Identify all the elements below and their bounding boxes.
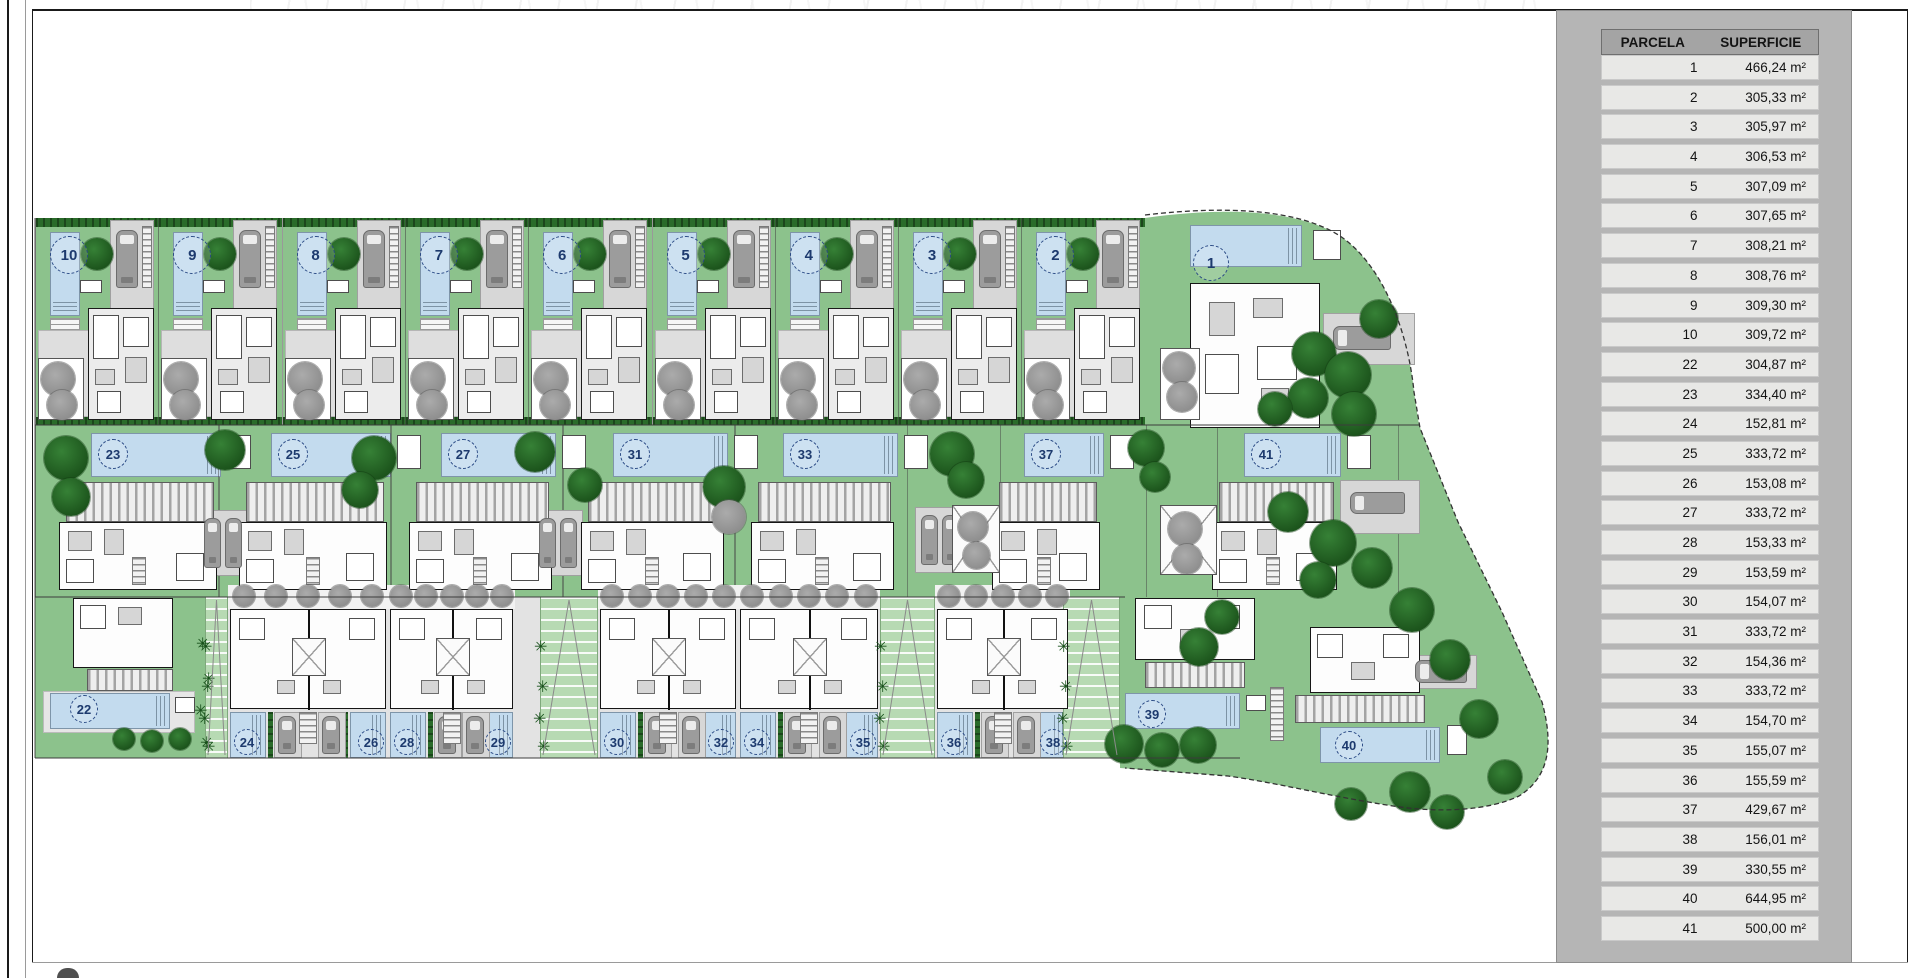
car-icon — [225, 518, 242, 568]
parcel-row: 33333,72 m² — [1601, 678, 1819, 703]
furniture — [1018, 680, 1036, 694]
gray-tree-icon — [265, 585, 287, 607]
parcel-number: 28 — [1602, 535, 1704, 550]
parcel-number: 8 — [1602, 268, 1704, 283]
room — [216, 315, 242, 359]
plot-villa-mid — [1000, 425, 1147, 597]
furniture — [590, 531, 614, 551]
parcel-row: 25333,72 m² — [1601, 441, 1819, 466]
pool-steps — [546, 302, 570, 313]
plot-label: 38 — [1040, 729, 1066, 755]
parcel-area: 334,40 m² — [1704, 387, 1818, 402]
furniture — [865, 357, 887, 383]
tree-icon — [1180, 727, 1216, 763]
parcel-number: 36 — [1602, 773, 1704, 788]
furniture — [372, 357, 394, 383]
plot-label: 4 — [790, 236, 828, 274]
pergola — [416, 482, 549, 522]
room — [349, 618, 375, 640]
tree-icon — [1430, 795, 1464, 829]
parcel-row: 10309,72 m² — [1601, 322, 1819, 347]
gray-tree-icon — [963, 542, 990, 569]
tree-icon — [1310, 520, 1356, 566]
plot-label: 23 — [98, 439, 128, 469]
parcel-table: PARCELA SUPERFICIE 1466,24 m²2305,33 m²3… — [1601, 29, 1819, 946]
room — [176, 553, 204, 581]
room — [1383, 634, 1409, 658]
tree-icon — [1268, 492, 1308, 532]
parcel-row: 31333,72 m² — [1601, 619, 1819, 644]
tree-icon — [113, 728, 135, 750]
plot-label: 28 — [394, 729, 420, 755]
palm-icon: ✳ — [874, 640, 887, 656]
house — [335, 308, 401, 420]
furniture — [778, 680, 796, 694]
plot-label: 22 — [70, 695, 98, 723]
furniture — [218, 369, 238, 385]
room — [1144, 605, 1172, 629]
room — [841, 618, 867, 640]
parcel-number: 22 — [1602, 357, 1704, 372]
car-icon — [322, 716, 340, 754]
pool-steps — [1039, 302, 1063, 313]
furniture — [988, 357, 1010, 383]
furniture — [323, 680, 341, 694]
parcel-table-header-superficie: SUPERFICIE — [1704, 35, 1818, 50]
parcel-area: 308,21 m² — [1704, 238, 1818, 253]
parcel-row: 9309,30 m² — [1601, 293, 1819, 318]
room — [463, 315, 489, 359]
stairs — [645, 557, 659, 585]
parcel-row: 1466,24 m² — [1601, 55, 1819, 80]
table-icon — [573, 280, 595, 293]
plot-label: 35 — [850, 729, 876, 755]
stairs — [1266, 557, 1280, 585]
gray-tree-icon — [629, 585, 651, 607]
stairs — [1128, 226, 1138, 288]
furniture — [1081, 369, 1101, 385]
furniture — [284, 529, 304, 555]
gray-tree-icon — [1019, 585, 1041, 607]
plot-label: 36 — [941, 729, 967, 755]
pool-steps — [423, 302, 447, 313]
room — [340, 315, 366, 359]
tree-icon — [1335, 788, 1367, 820]
tree-icon — [1105, 725, 1143, 763]
room — [837, 391, 861, 413]
parcel-area: 304,87 m² — [1704, 357, 1818, 372]
parcel-row: 5307,09 m² — [1601, 174, 1819, 199]
gray-tree-icon — [713, 585, 735, 607]
house — [73, 598, 173, 668]
gray-tree-icon — [297, 585, 319, 607]
pool-steps — [884, 436, 895, 474]
parcel-table-panel: PARCELA SUPERFICIE 1466,24 m²2305,33 m²3… — [1556, 10, 1852, 963]
tree-icon — [1352, 548, 1392, 588]
furniture — [824, 680, 842, 694]
room — [246, 559, 274, 583]
sunbeds-icon — [1347, 435, 1371, 469]
parcel-number: 4 — [1602, 149, 1704, 164]
room — [956, 315, 982, 359]
pergola — [1295, 695, 1425, 723]
furniture — [588, 369, 608, 385]
house — [581, 522, 724, 590]
pool — [50, 693, 170, 729]
car-icon — [682, 716, 700, 754]
gray-tree-icon — [910, 390, 940, 420]
gray-tree-icon — [540, 390, 570, 420]
car-icon — [239, 230, 261, 288]
gray-tree-icon — [417, 390, 447, 420]
gray-tree-icon — [798, 585, 820, 607]
furniture — [972, 680, 990, 694]
furniture — [1209, 302, 1235, 336]
furniture — [1111, 357, 1133, 383]
gray-tree-icon — [329, 585, 351, 607]
furniture — [712, 369, 732, 385]
furniture — [454, 529, 474, 555]
room — [946, 618, 972, 640]
stairs-court — [436, 638, 470, 676]
gray-tree-icon — [294, 390, 324, 420]
stairs — [473, 557, 487, 585]
room — [999, 559, 1027, 583]
parcel-number: 3 — [1602, 119, 1704, 134]
car-icon — [609, 230, 631, 288]
parcel-number: 23 — [1602, 387, 1704, 402]
tree-icon — [1430, 640, 1470, 680]
furniture — [958, 369, 978, 385]
pool-steps — [1288, 228, 1299, 264]
tree-icon — [1205, 600, 1239, 634]
parcel-number: 31 — [1602, 624, 1704, 639]
tree-icon — [1145, 733, 1179, 767]
furniture — [465, 369, 485, 385]
parcel-row: 36155,59 m² — [1601, 768, 1819, 793]
pergola — [1145, 662, 1245, 688]
house — [937, 609, 1068, 709]
house — [239, 522, 387, 590]
utility-icon — [1246, 695, 1266, 711]
car-icon — [116, 230, 138, 288]
tree-icon — [1460, 700, 1498, 738]
car-icon — [560, 518, 577, 568]
room — [1257, 346, 1297, 380]
car-icon — [204, 518, 221, 568]
plot-label: 41 — [1251, 439, 1281, 469]
parcel-area: 154,07 m² — [1704, 594, 1818, 609]
sunbeds-icon — [904, 435, 928, 469]
palm-icon: ✳ — [537, 740, 550, 756]
stairs — [265, 226, 275, 288]
tree-icon — [1488, 760, 1522, 794]
pool-steps — [176, 302, 200, 313]
plot-label: 3 — [913, 236, 951, 274]
tree-icon — [1180, 628, 1218, 666]
parcel-area: 152,81 m² — [1704, 416, 1818, 431]
parcel-number: 1 — [1602, 60, 1704, 75]
parcel-area: 307,65 m² — [1704, 208, 1818, 223]
parcel-table-header: PARCELA SUPERFICIE — [1601, 29, 1819, 55]
parcel-number: 9 — [1602, 298, 1704, 313]
parcel-number: 7 — [1602, 238, 1704, 253]
parcel-area: 153,33 m² — [1704, 535, 1818, 550]
stairs — [1005, 226, 1015, 288]
pergola — [588, 482, 721, 522]
room — [740, 317, 766, 347]
furniture — [104, 529, 124, 555]
hedge-strip — [268, 712, 273, 758]
stairs — [635, 226, 645, 288]
parcel-area: 155,07 m² — [1704, 743, 1818, 758]
pergola — [758, 482, 891, 522]
house — [230, 609, 386, 709]
pool-steps — [793, 302, 817, 313]
parcel-number: 27 — [1602, 505, 1704, 520]
hedge-strip — [778, 712, 783, 758]
room — [511, 553, 539, 581]
parcel-row: 4306,53 m² — [1601, 144, 1819, 169]
plot-label: 34 — [744, 729, 770, 755]
room — [476, 618, 502, 640]
house — [458, 308, 524, 420]
plot-label: 39 — [1138, 700, 1166, 728]
parcel-number: 30 — [1602, 594, 1704, 609]
hedge-strip — [638, 712, 643, 758]
pool-steps — [53, 302, 77, 313]
gray-tree-icon — [1168, 512, 1202, 546]
furniture — [1257, 529, 1277, 555]
stairs — [800, 712, 818, 744]
plot-label: 26 — [358, 729, 384, 755]
furniture — [467, 680, 485, 694]
parcel-table-rows: 1466,24 m²2305,33 m²3305,97 m²4306,53 m²… — [1601, 55, 1819, 941]
gray-tree-icon — [685, 585, 707, 607]
stairs — [142, 226, 152, 288]
tree-icon — [1390, 588, 1434, 632]
room — [749, 618, 775, 640]
room — [246, 317, 272, 347]
parcel-number: 41 — [1602, 921, 1704, 936]
room — [699, 618, 725, 640]
parcel-area: 466,24 m² — [1704, 60, 1818, 75]
palm-icon: ✳ — [202, 740, 215, 756]
room — [399, 618, 425, 640]
table-icon — [943, 280, 965, 293]
stairs — [994, 712, 1012, 744]
parcel-area: 154,70 m² — [1704, 713, 1818, 728]
parcel-row: 28153,33 m² — [1601, 530, 1819, 555]
parcel-row: 2305,33 m² — [1601, 85, 1819, 110]
table-icon — [203, 280, 225, 293]
stairs — [1037, 557, 1051, 585]
gray-tree-icon — [390, 585, 412, 607]
parcel-area: 307,09 m² — [1704, 179, 1818, 194]
room — [1219, 559, 1247, 583]
house — [1074, 308, 1140, 420]
plot-label: 40 — [1335, 731, 1363, 759]
plot-label: 37 — [1031, 439, 1061, 469]
furniture — [342, 369, 362, 385]
parcel-area: 429,67 m² — [1704, 802, 1818, 817]
stairs — [299, 712, 317, 744]
room — [1031, 618, 1057, 640]
gray-tree-icon — [938, 585, 960, 607]
furniture — [248, 531, 272, 551]
parcel-number: 32 — [1602, 654, 1704, 669]
plot-label: 27 — [448, 439, 478, 469]
car-icon — [856, 230, 878, 288]
pool-steps — [1226, 696, 1237, 726]
gray-tree-icon — [361, 585, 383, 607]
parcel-area: 155,59 m² — [1704, 773, 1818, 788]
car-icon — [823, 716, 841, 754]
pool-steps — [670, 302, 694, 313]
parcel-area: 306,53 m² — [1704, 149, 1818, 164]
furniture — [277, 680, 295, 694]
parcel-area: 500,00 m² — [1704, 921, 1818, 936]
room — [609, 618, 635, 640]
parcel-area: 333,72 m² — [1704, 624, 1818, 639]
parcel-row: 40644,95 m² — [1601, 886, 1819, 911]
parcel-row: 6307,65 m² — [1601, 203, 1819, 228]
gray-tree-icon — [787, 390, 817, 420]
room — [1083, 391, 1107, 413]
pool-steps — [156, 696, 167, 726]
parcel-number: 10 — [1602, 327, 1704, 342]
utility-icon — [175, 697, 195, 713]
tree-icon — [1300, 562, 1336, 598]
parcel-area: 305,97 m² — [1704, 119, 1818, 134]
car-icon — [1102, 230, 1124, 288]
parcel-area: 309,30 m² — [1704, 298, 1818, 313]
stairs — [882, 226, 892, 288]
parcel-number: 25 — [1602, 446, 1704, 461]
room — [493, 317, 519, 347]
gray-tree-icon — [441, 585, 463, 607]
plot-label: 1 — [1193, 245, 1229, 281]
stairs-court — [292, 638, 326, 676]
room — [93, 315, 119, 359]
furniture — [1253, 298, 1283, 318]
parcel-row: 23334,40 m² — [1601, 382, 1819, 407]
car-icon — [486, 230, 508, 288]
room — [758, 559, 786, 583]
house — [992, 522, 1100, 590]
parcel-row: 24152,81 m² — [1601, 411, 1819, 436]
room — [1317, 634, 1343, 658]
room — [66, 559, 94, 583]
stairs-court — [652, 638, 686, 676]
furniture — [1001, 531, 1025, 551]
parcel-area: 308,76 m² — [1704, 268, 1818, 283]
house — [828, 308, 894, 420]
furniture — [495, 357, 517, 383]
palm-icon: ✳ — [198, 712, 211, 728]
stairs-court — [793, 638, 827, 676]
gray-tree-icon — [1046, 585, 1068, 607]
house — [751, 522, 894, 590]
tree-icon — [1390, 772, 1430, 812]
stairs-court — [987, 638, 1021, 676]
house — [740, 609, 878, 709]
pool-steps — [1327, 436, 1338, 474]
table-icon — [450, 280, 472, 293]
furniture — [637, 680, 655, 694]
palm-icon: ✳ — [536, 680, 549, 696]
palm-icon: ✳ — [1059, 680, 1072, 696]
tree-icon — [44, 436, 88, 480]
room — [863, 317, 889, 347]
parcel-row: 34154,70 m² — [1601, 708, 1819, 733]
house — [59, 522, 217, 590]
tree-icon — [1140, 462, 1170, 492]
stairs — [1270, 687, 1284, 741]
parcel-number: 5 — [1602, 179, 1704, 194]
room — [853, 553, 881, 581]
furniture — [418, 531, 442, 551]
plot-label: 30 — [604, 729, 630, 755]
parcel-number: 26 — [1602, 476, 1704, 491]
car-icon — [733, 230, 755, 288]
house — [600, 609, 736, 709]
furniture — [835, 369, 855, 385]
pool-steps — [916, 302, 940, 313]
gray-tree-icon — [233, 585, 255, 607]
parcel-area: 644,95 m² — [1704, 891, 1818, 906]
room — [1109, 317, 1135, 347]
stairs — [443, 712, 461, 744]
parcel-row: 27333,72 m² — [1601, 500, 1819, 525]
plot-label: 10 — [50, 236, 88, 274]
palm-icon: ✳ — [1056, 712, 1069, 728]
parcel-row: 41500,00 m² — [1601, 916, 1819, 941]
house — [1310, 627, 1420, 693]
stairs — [132, 557, 146, 585]
furniture — [1037, 529, 1057, 555]
table-icon — [80, 280, 102, 293]
room — [239, 618, 265, 640]
gray-tree-icon — [415, 585, 437, 607]
house — [211, 308, 277, 420]
parcel-area: 309,72 m² — [1704, 327, 1818, 342]
plot-label: 29 — [485, 729, 511, 755]
tree-icon — [1258, 392, 1292, 426]
car-icon — [539, 518, 556, 568]
parcel-area: 153,59 m² — [1704, 565, 1818, 580]
gray-tree-icon — [855, 585, 877, 607]
room — [714, 391, 738, 413]
plot-label: 8 — [297, 236, 335, 274]
gray-tree-icon — [466, 585, 488, 607]
table-icon — [327, 280, 349, 293]
parcel-number: 24 — [1602, 416, 1704, 431]
room — [833, 315, 859, 359]
drawing-sheet: 109876543212325273133374122✳✳✳✳✳✳✳✳✳✳✳✳✳… — [0, 0, 1920, 978]
car-icon — [466, 716, 484, 754]
furniture — [796, 529, 816, 555]
gray-tree-icon — [770, 585, 792, 607]
house — [390, 609, 513, 709]
tree-icon — [1325, 352, 1371, 398]
pool-steps — [300, 302, 324, 313]
parcel-row: 30154,07 m² — [1601, 589, 1819, 614]
house — [581, 308, 647, 420]
gray-tree-icon — [1172, 544, 1202, 574]
plot-villa-mid — [734, 425, 908, 597]
car-icon — [1350, 492, 1405, 514]
